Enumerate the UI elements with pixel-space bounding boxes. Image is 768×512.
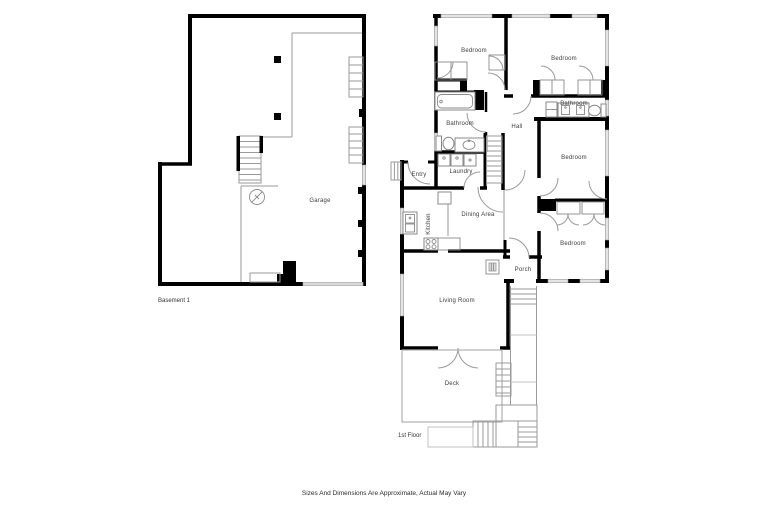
utility-symbol-icon [250,190,265,205]
room-label-bedroom-4: Bedroom [560,241,586,247]
stairwell-door-arc [478,187,503,212]
deck-stairs-icon [496,363,511,396]
room-label-dining-area: Dining Area [461,212,495,218]
room-label-deck: Deck [445,381,460,387]
bedroom2-closet2-door-arc [579,66,593,80]
hall-stairs-icon [487,136,503,183]
sink-icon-bath1 [455,138,484,152]
room-label-porch: Porch [515,267,532,273]
stove-icon [424,238,460,250]
room-label-bedroom-2: Bedroom [551,56,577,62]
structural-posts [274,56,364,257]
first-floor-label: 1st Floor [398,433,421,439]
room-label-kitchen: Kitchen [426,213,432,234]
room-label-bedroom-3: Bedroom [561,155,587,161]
first-floor-plan: Bedroom Bedroom Bathroom Bathroom Hall L… [391,14,609,447]
room-label-hall: Hall [511,124,522,130]
room-label-bedroom-1: Bedroom [461,48,487,54]
garage-door [303,282,363,285]
closet-bifold-arcs-2 [583,214,605,225]
toilet-icon-bath1 [436,136,454,151]
basement-plan: Garage Basement 1 [158,14,366,304]
porch-stairs-icon [511,286,537,405]
room-label-living-room: Living Room [439,298,475,304]
basement-floor-label: Basement 1 [158,298,191,304]
room-label-bathroom-2: Bathroom [560,101,588,107]
bathtub-icon [435,92,475,110]
bedroom4-door-arc [540,213,558,231]
room-label-bathroom-1: Bathroom [446,121,474,127]
deck-french-door-right-arc [458,348,478,368]
floorplan-drawing: Garage Basement 1 [0,0,768,512]
hall-door-arc [505,170,525,190]
room-label-garage: Garage [309,198,331,204]
bedroom3-exterior-door-arc [589,181,607,199]
bedroom1-closet2-door-arc [489,56,503,70]
entry-steps-icon [391,162,401,180]
refrigerator-icon [438,192,451,204]
deck-french-door-left-arc [438,348,458,368]
kitchen-sink-icon [403,212,417,234]
rear-landing-icon [428,405,537,447]
room-label-entry: Entry [411,172,426,178]
fireplace-icon [486,260,499,274]
closet-bifold-arcs-1 [557,214,579,225]
washer-dryer-icons [438,154,476,166]
bedroom2-closet-door-arc [541,66,555,80]
toilet-icon-bath2 [589,104,607,117]
room-label-laundry: Laundry [449,169,472,175]
bedroom1-door-arc [488,73,505,90]
basement-stairs-icon [237,136,264,183]
counter [438,238,460,250]
bedroom2-door-arc [513,96,531,114]
first-floor-interior-walls [402,14,607,251]
disclaimer-caption: Sizes And Dimensions Are Approximate, Ac… [302,490,467,497]
basement-window [362,165,365,185]
chimney-icon [250,261,296,283]
floorplan-page: Garage Basement 1 [0,0,768,512]
bedroom3-door-arc [540,178,558,196]
front-door-arc [509,238,529,258]
cabinet-icon-bath2 [546,102,557,117]
